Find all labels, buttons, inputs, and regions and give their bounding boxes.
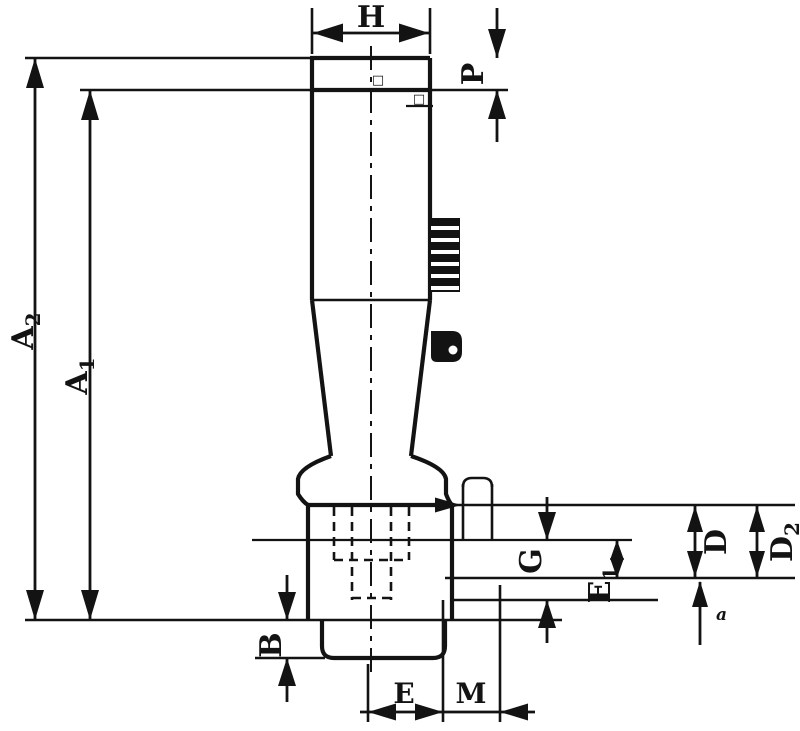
dim-E1: E1 <box>583 540 624 603</box>
drawing-canvas: H P A2 A1 B G <box>0 0 800 731</box>
dim-D2: D2 <box>749 505 800 578</box>
knurl-band <box>430 218 460 292</box>
dim-label-B: B <box>254 632 289 657</box>
dim-a: a <box>692 581 727 645</box>
technical-drawing: H P A2 A1 B G <box>0 0 800 731</box>
square-mark-bottom: □ <box>413 92 425 107</box>
dim-label-E1: E1 <box>583 567 622 604</box>
dim-P: P <box>456 8 506 142</box>
dim-label-G: G <box>514 548 549 574</box>
dim-H: H <box>312 0 430 54</box>
dim-B: B <box>254 575 296 702</box>
dim-A1: A1 <box>60 90 99 620</box>
square-mark-top: □ <box>372 73 384 88</box>
dim-label-D: D <box>699 529 734 555</box>
dim-label-D2: D2 <box>765 522 800 562</box>
socket-projection <box>435 478 492 540</box>
dim-D: D <box>687 505 734 578</box>
dim-label-A1: A1 <box>60 357 99 395</box>
clip-detail <box>431 331 462 362</box>
dim-label-A2: A2 <box>6 312 45 350</box>
dim-A2: A2 <box>6 58 45 620</box>
dim-label-M: M <box>456 677 487 710</box>
dim-label-H: H <box>357 0 385 35</box>
dim-label-a: a <box>716 605 727 625</box>
dim-label-P: P <box>456 63 491 86</box>
dim-E-M: E M <box>360 677 535 721</box>
dim-label-E: E <box>393 677 414 710</box>
